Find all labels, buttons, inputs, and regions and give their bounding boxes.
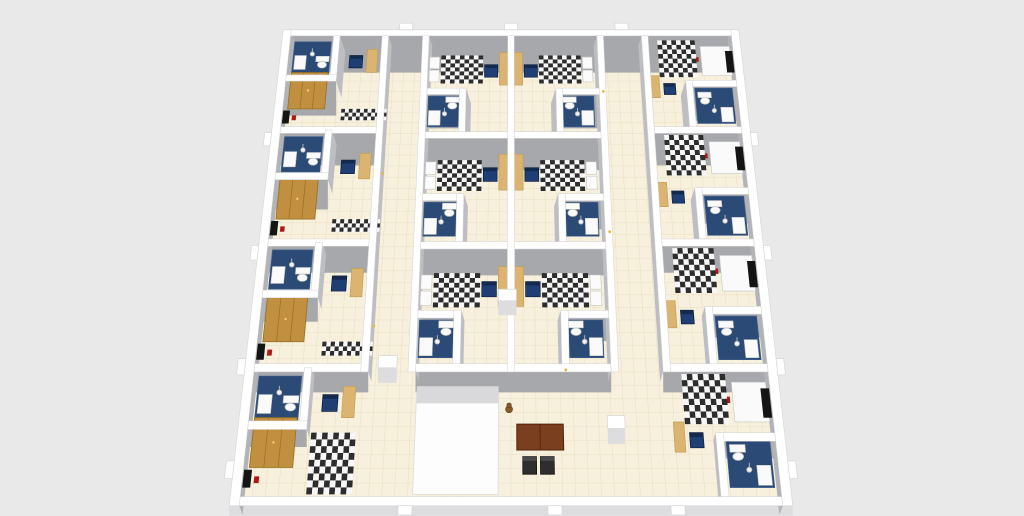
bed-cell [696,170,701,175]
light-switch-dot [372,324,375,327]
bed-cell [562,273,567,278]
toilet-tank [563,97,577,103]
bed-cell [675,287,681,293]
bed-cell [690,40,695,45]
bed-cell [690,282,696,288]
bed-cell [703,374,709,380]
bed-cell [721,393,727,399]
bed-cell [443,297,448,302]
bed-cell [442,178,447,182]
bed-cell [474,59,479,63]
window-notch [400,23,413,30]
bed-cell [572,75,577,79]
bed-cell [681,49,686,54]
bed-cell [550,173,555,177]
pillow [582,57,592,69]
bed-cell [545,164,550,168]
bed-cell [325,467,331,474]
bed-cell [704,380,710,386]
bed-cell [568,302,573,307]
bed-cell [664,68,669,73]
bed-cell [667,170,672,175]
bed-cell [477,160,482,164]
bed-cell [674,140,679,145]
bed-cell [441,56,446,60]
bed-cell [674,73,679,78]
bed-cell [576,56,581,60]
bed-cell [558,79,563,83]
bed-cell [580,173,585,177]
bed-cell [437,169,442,173]
bed-cell [326,453,332,460]
bed-cell [454,297,459,302]
bed-cell [680,155,685,160]
bed-cell [464,71,469,75]
bed-cell [557,59,562,63]
bed-cell [710,393,716,399]
bed-cell [560,160,565,164]
rug-cell [326,346,331,351]
bed-cell [540,160,545,164]
bed-cell [711,282,717,288]
bed-cell [675,155,680,160]
bed-cell [314,460,320,467]
bed-cell [701,282,707,288]
bed-cell [555,164,560,168]
bed-cell [464,302,469,307]
bed-cell [335,487,341,494]
bed-cell [674,270,680,276]
bed-cell [558,75,563,79]
bed-cell [670,150,675,155]
bed-cell [449,278,454,283]
bed-cell [576,59,581,63]
rug-cell [340,219,344,223]
bed-cell [677,170,682,175]
bed-cell [670,145,675,150]
bed-cell [316,439,322,446]
bed-cell [716,399,722,405]
bed-cell [557,288,562,293]
bed-cell [705,393,711,399]
bed-cell [578,283,583,288]
bed-cell [695,411,701,417]
bed-cell [552,297,557,302]
bed-cell [569,160,574,164]
shower-tray [757,465,773,485]
bed-cell [668,54,673,59]
bed-cell [475,293,480,298]
bed-cell [706,276,712,282]
bed-cell [445,79,450,83]
bed-cell [688,68,693,73]
bed-cell [557,273,562,278]
bed-cell [687,380,693,386]
bed-cell [583,278,588,283]
bed-cell [462,164,467,168]
door-block [607,416,625,429]
bed-cell [699,386,705,392]
bed-cell [562,75,567,79]
bed-cell [691,165,696,170]
bed-cell [539,75,544,79]
bed-cell [310,439,316,446]
bed-cell [578,288,583,293]
bed-cell [553,302,558,307]
bed-cell [567,79,572,83]
bed-cell [552,283,557,288]
bed-cell [563,297,568,302]
bed-cell [567,67,572,71]
bed-cell [698,380,704,386]
bed-cell [575,186,580,190]
pillow [590,275,601,289]
bed-cell [664,63,669,68]
light-switch-dot [602,90,605,93]
rug-cell [348,219,352,223]
bed-cell [667,45,672,50]
bed-cell [677,59,682,64]
window-notch [398,506,412,515]
bed-cell [441,71,446,75]
bath-wall [275,173,329,180]
bed-cell [547,273,552,278]
bed-cell [470,283,475,288]
rug-cell [351,351,356,356]
bed-cell [709,374,715,380]
interior-wall [663,364,768,372]
bed-cell [700,155,705,160]
bed-cell [672,54,677,59]
rug-cell [367,116,371,120]
bed-cell [686,54,691,59]
rug-cell [331,342,336,347]
bed-cell [675,150,680,155]
bed-cell [714,380,720,386]
bed-cell [666,165,671,170]
window-notch [263,133,271,146]
bed-cell [694,140,699,145]
bed-cell [722,399,728,405]
bed-cell [437,173,442,177]
bed-cell [562,278,567,283]
bed-cell [540,178,545,182]
bed-cell [562,67,567,71]
bed-cell [540,164,545,168]
bed-cell [682,59,687,64]
bath-wall [716,433,776,442]
bed-cell [457,169,462,173]
bed-cell [341,480,347,487]
bed-cell [689,265,695,271]
bed-cell [455,63,460,67]
bed-cell [694,399,700,405]
bed-cell [671,165,676,170]
bed-cell [701,165,706,170]
bed-cell [469,79,474,83]
bed-cell [550,182,555,186]
bed-cell [449,297,454,302]
bed-cell [688,73,693,78]
bed-cell [584,302,589,307]
bed-cell [469,297,474,302]
rug-cell [332,219,336,223]
bed-cell [720,386,726,392]
bed-cell [459,302,464,307]
bed-cell [330,480,336,487]
bed-cell [696,282,702,288]
bed-cell [563,79,568,83]
bed-cell [311,433,317,440]
rug-cell [364,223,368,227]
bed-cell [349,439,355,446]
desk-chair-back [680,310,693,314]
shower-tray [732,217,746,233]
ceiling-lamp [723,219,728,224]
ceiling-lamp [712,108,716,112]
bed-cell [547,283,552,288]
bed-cell [452,186,457,190]
bed-cell [452,164,457,168]
bed-cell [543,56,548,60]
bed-cell [679,135,684,140]
bed-cell [449,283,454,288]
bed-cell [472,164,477,168]
bath-wall [558,194,566,242]
bed-cell [580,186,585,190]
bed-cell [471,186,476,190]
rug-cell [343,228,347,232]
bed-cell [438,293,443,298]
fire-extinguisher [292,115,297,120]
bed-cell [555,186,560,190]
toilet-bowl [317,61,326,68]
bed-cell [547,278,552,283]
bed-cell [445,75,450,79]
bed-cell [330,473,336,480]
toilet-tank [442,203,456,209]
bed-cell [572,71,577,75]
bed-cell [347,480,353,487]
bed-cell [659,59,664,64]
interior-wall [655,239,755,246]
rug-cell [356,116,360,120]
toilet-tank [718,321,733,328]
bed-cell [685,150,690,155]
bed-cell [557,56,562,60]
pillow [421,275,432,289]
bed-cell [677,54,682,59]
bed-cell [574,164,579,168]
bed-cell [315,453,321,460]
toilet-tank [439,321,454,328]
bed-cell [464,79,469,83]
bed-cell [539,79,544,83]
rug-cell [339,342,344,347]
window-notch [750,133,758,146]
bed-cell [701,418,707,424]
bed-cell [545,182,550,186]
bed-cell [686,287,692,293]
bed-cell [314,467,320,474]
bed-cell [558,302,563,307]
bed-cell [312,480,318,487]
bed-cell [437,186,442,190]
bed-cell [444,278,449,283]
bed-cell [712,411,718,417]
bed-cell [329,487,335,494]
toilet-bowl [571,328,581,335]
bed-cell [672,170,677,175]
shower-tray [271,267,285,284]
rug-cell [341,109,345,113]
bed-cell [682,380,688,386]
bed-cell [336,473,342,480]
bed-cell [553,56,558,60]
bed-cell [547,302,552,307]
toilet-bowl [710,207,720,214]
bed-cell [544,71,549,75]
rug-cell [345,109,349,113]
bed-cell [694,259,700,265]
bed-cell [348,453,354,460]
bed-cell [666,160,671,165]
bed-cell [662,40,667,45]
bed-cell [434,278,439,283]
bed-cell [690,45,695,50]
bed-cell [469,302,474,307]
bed-cell [673,259,679,265]
shower-tray [283,152,297,167]
bed-cell [691,49,696,54]
bed-cell [440,79,445,83]
bed-cell [687,374,693,380]
bed-cell [573,278,578,283]
bed-cell [690,155,695,160]
ceiling-lamp [439,220,444,225]
bed-cell [553,67,558,71]
toilet-bowl [308,158,317,165]
ceiling-lamp [301,148,305,152]
bed-cell [333,433,339,440]
bed-cell [472,160,477,164]
bed-cell [668,59,673,64]
bed-cell [704,259,710,265]
bed-cell [686,45,691,50]
bed-cell [546,186,551,190]
bed-cell [324,473,330,480]
bed-cell [680,287,686,293]
bed-cell [567,273,572,278]
rug-cell [352,223,356,227]
ceiling-lamp [289,262,294,267]
pillow [429,70,439,82]
bed-cell [308,460,314,467]
bed-cell [710,270,716,276]
bed-cell [320,453,326,460]
tv-panel [282,111,290,124]
bed-cell [477,173,482,177]
bed-cell [306,487,312,494]
bed-cell [326,446,332,453]
toilet-bowl [297,274,307,281]
rug-cell [351,346,356,351]
bed-cell [683,248,689,254]
window-notch [776,359,785,375]
bed-cell [567,56,572,60]
bed-cell [470,273,475,278]
bed-cell [307,473,313,480]
desk-chair-back [689,433,703,437]
bed-cell [700,150,705,155]
bath-wall [695,187,749,194]
desk-chair-back [485,65,498,68]
bed-cell [475,283,480,288]
bed-cell [683,393,689,399]
bed-cell [475,273,480,278]
bed-cell [698,135,703,140]
bed-cell [567,63,572,67]
bed-cell [558,297,563,302]
desk-chair-back [332,276,347,280]
bed-cell [457,164,462,168]
bed-cell [658,49,663,54]
rug-cell [335,228,339,232]
bed-cell [694,393,700,399]
bed-cell [674,135,679,140]
rug-cell [368,109,372,113]
bed-cell [669,135,674,140]
bed-cell [452,182,457,186]
rug-cell [345,113,349,117]
bed-cell [338,446,344,453]
rug-cell [347,342,352,347]
bed-cell [692,374,698,380]
bed-cell [659,63,664,68]
bed-cell [446,56,451,60]
rug-cell [336,223,340,227]
bed-cell [457,182,462,186]
bed-cell [475,278,480,283]
floorplan-viewport[interactable] [0,0,1024,516]
bed-cell [583,288,588,293]
bed-cell [685,276,691,282]
bed-cell [573,297,578,302]
door-block-face [608,428,625,443]
bed-cell [576,63,581,67]
rug-cell [371,109,375,113]
bed-cell [562,71,567,75]
bed-cell [679,270,685,276]
bed-cell [442,169,447,173]
bed-cell [475,302,480,307]
bed-cell [682,54,687,59]
bed-cell [696,287,702,293]
bed-cell [669,140,674,145]
bed-cell [478,59,483,63]
rug-cell [348,223,352,227]
bed-cell [680,282,686,288]
bed-cell [545,160,550,164]
bed-cell [544,75,549,79]
bed-cell [447,182,452,186]
bed-cell [681,160,686,165]
bed-cell [691,160,696,165]
bed-cell [550,164,555,168]
interior-wall [507,36,515,372]
rug-cell [347,351,352,356]
bed-cell [324,480,330,487]
